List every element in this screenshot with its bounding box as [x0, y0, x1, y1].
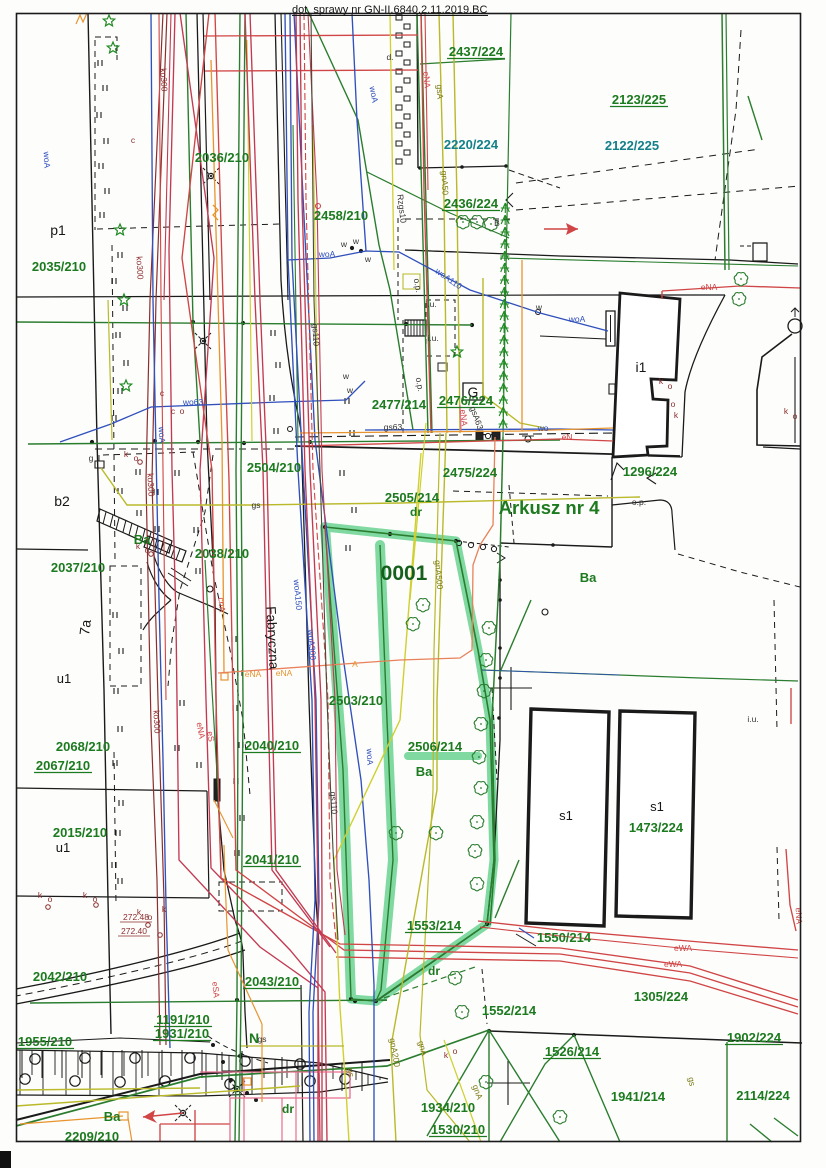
svg-text:1296/224: 1296/224: [623, 464, 678, 479]
svg-text:eNA: eNA: [701, 282, 718, 292]
svg-text:2042/210: 2042/210: [33, 969, 87, 984]
svg-text:o: o: [793, 411, 798, 421]
svg-text:i.u.: i.u.: [747, 714, 758, 724]
svg-text:d.: d.: [386, 52, 393, 62]
svg-text:2035/210: 2035/210: [32, 259, 86, 274]
svg-text:gnA50: gnA50: [439, 170, 450, 195]
svg-text:woA: woA: [157, 425, 168, 443]
svg-text:2436/224: 2436/224: [444, 196, 499, 211]
svg-text:1530/210: 1530/210: [431, 1122, 485, 1137]
svg-text:Ba: Ba: [104, 1109, 121, 1124]
svg-text:1902/224: 1902/224: [727, 1030, 782, 1045]
svg-text:w: w: [535, 302, 543, 312]
svg-text:g: g: [89, 453, 94, 463]
svg-text:2504/210: 2504/210: [247, 460, 301, 475]
svg-text:eNA: eNA: [276, 668, 293, 678]
svg-text:eN: eN: [562, 432, 573, 442]
svg-text:gs: gs: [258, 1034, 267, 1044]
svg-text:A: A: [352, 659, 358, 669]
svg-text:o: o: [148, 912, 153, 922]
svg-text:w: w: [346, 385, 354, 395]
svg-text:2477/214: 2477/214: [372, 397, 427, 412]
svg-text:i.u.: i.u.: [427, 333, 438, 343]
svg-text:eNA: eNA: [245, 669, 262, 679]
svg-text:2041/210: 2041/210: [245, 852, 299, 867]
svg-text:gs: gs: [252, 500, 261, 510]
svg-text:gs110: gs110: [310, 323, 321, 346]
svg-text:2114/224: 2114/224: [736, 1088, 790, 1103]
svg-text:u1: u1: [56, 840, 70, 855]
svg-text:w: w: [352, 236, 360, 246]
svg-text:1934/210: 1934/210: [421, 1100, 475, 1115]
svg-text:2067/210: 2067/210: [36, 758, 90, 773]
svg-text:2506/214: 2506/214: [408, 739, 463, 754]
svg-text:woA: woA: [42, 150, 53, 168]
svg-text:2037/210: 2037/210: [51, 560, 105, 575]
svg-text:1305/224: 1305/224: [634, 989, 689, 1004]
svg-text:dr: dr: [428, 964, 440, 978]
svg-text:o: o: [453, 1046, 458, 1056]
svg-text:o.p.: o.p.: [632, 497, 646, 507]
svg-text:2068/210: 2068/210: [56, 739, 110, 754]
svg-text:Ba: Ba: [416, 764, 433, 779]
svg-text:2437/224: 2437/224: [449, 44, 504, 59]
svg-text:G: G: [468, 384, 479, 400]
svg-text:woA: woA: [365, 747, 376, 765]
svg-text:eNA: eNA: [794, 907, 805, 924]
svg-text:2476/224: 2476/224: [439, 393, 494, 408]
svg-text:Ba: Ba: [580, 570, 597, 585]
svg-text:1191/210: 1191/210: [156, 1012, 210, 1027]
svg-text:B: B: [494, 218, 500, 228]
svg-text:o: o: [180, 406, 185, 416]
svg-text:Arkusz nr 4: Arkusz nr 4: [499, 497, 600, 518]
svg-text:o: o: [671, 399, 676, 409]
svg-text:dr: dr: [282, 1102, 294, 1116]
svg-text:p1: p1: [50, 222, 66, 238]
svg-text:eWA: eWA: [664, 959, 682, 969]
svg-text:b2: b2: [54, 493, 70, 509]
svg-text:o: o: [48, 894, 53, 904]
svg-text:eNA: eNA: [458, 409, 469, 427]
svg-text:ko300: ko300: [158, 68, 169, 92]
svg-text:i.u.: i.u.: [425, 299, 436, 309]
svg-text:w: w: [342, 371, 350, 381]
svg-text:0001: 0001: [381, 562, 428, 585]
svg-text:2475/224: 2475/224: [443, 465, 498, 480]
svg-text:1473/224: 1473/224: [629, 820, 684, 835]
svg-text:gs63: gs63: [384, 422, 403, 432]
svg-text:w: w: [364, 254, 372, 264]
svg-text:2503/210: 2503/210: [329, 693, 383, 708]
svg-text:272.40: 272.40: [121, 926, 147, 936]
svg-text:woA: woA: [318, 249, 336, 259]
svg-text:2038/210: 2038/210: [195, 546, 249, 561]
svg-text:gs: gs: [345, 1067, 356, 1078]
svg-text:2220/224: 2220/224: [444, 137, 499, 152]
svg-text:ko300: ko300: [134, 256, 145, 280]
svg-text:eWA: eWA: [674, 943, 692, 953]
svg-text:ko300: ko300: [145, 473, 156, 497]
svg-text:w: w: [340, 239, 348, 249]
svg-text:wo: wo: [537, 423, 549, 433]
svg-text:woA: woA: [568, 314, 586, 324]
svg-text:1553/214: 1553/214: [407, 918, 462, 933]
svg-text:1941/214: 1941/214: [611, 1089, 666, 1104]
svg-text:dot. sprawy nr GN-II.6840.2.11: dot. sprawy nr GN-II.6840.2.11.2019.BC: [292, 4, 488, 16]
svg-text:2505/214: 2505/214: [385, 490, 440, 505]
svg-text:s1: s1: [650, 799, 664, 814]
svg-text:gsA: gsA: [435, 84, 446, 99]
svg-text:eNA: eNA: [421, 71, 432, 89]
svg-text:dr: dr: [410, 505, 422, 519]
svg-text:i1: i1: [636, 359, 647, 375]
svg-text:2036/210: 2036/210: [195, 150, 249, 165]
svg-text:2122/225: 2122/225: [605, 138, 659, 153]
svg-text:cnA: cnA: [216, 597, 227, 613]
svg-text:1550/214: 1550/214: [537, 930, 592, 945]
svg-text:eSA: eSA: [210, 981, 221, 998]
svg-text:2015/210: 2015/210: [53, 825, 107, 840]
svg-text:2458/210: 2458/210: [314, 208, 368, 223]
svg-text:2043/210: 2043/210: [245, 974, 299, 989]
svg-text:1526/214: 1526/214: [545, 1044, 600, 1059]
svg-text:7a: 7a: [76, 618, 94, 636]
svg-text:wo63: wo63: [182, 397, 204, 407]
svg-text:1552/214: 1552/214: [482, 1003, 537, 1018]
svg-text:u1: u1: [57, 671, 71, 686]
svg-text:gs110: gs110: [328, 791, 339, 814]
svg-text:eS: eS: [205, 730, 217, 742]
svg-text:2123/225: 2123/225: [612, 92, 666, 107]
svg-text:1931/210: 1931/210: [155, 1026, 209, 1041]
svg-text:ko300: ko300: [151, 710, 162, 734]
svg-text:2040/210: 2040/210: [245, 738, 299, 753]
svg-text:s1: s1: [559, 808, 573, 823]
svg-text:1955/210: 1955/210: [18, 1034, 72, 1049]
svg-text:o: o: [668, 381, 673, 391]
svg-text:gs: gs: [686, 1076, 697, 1087]
